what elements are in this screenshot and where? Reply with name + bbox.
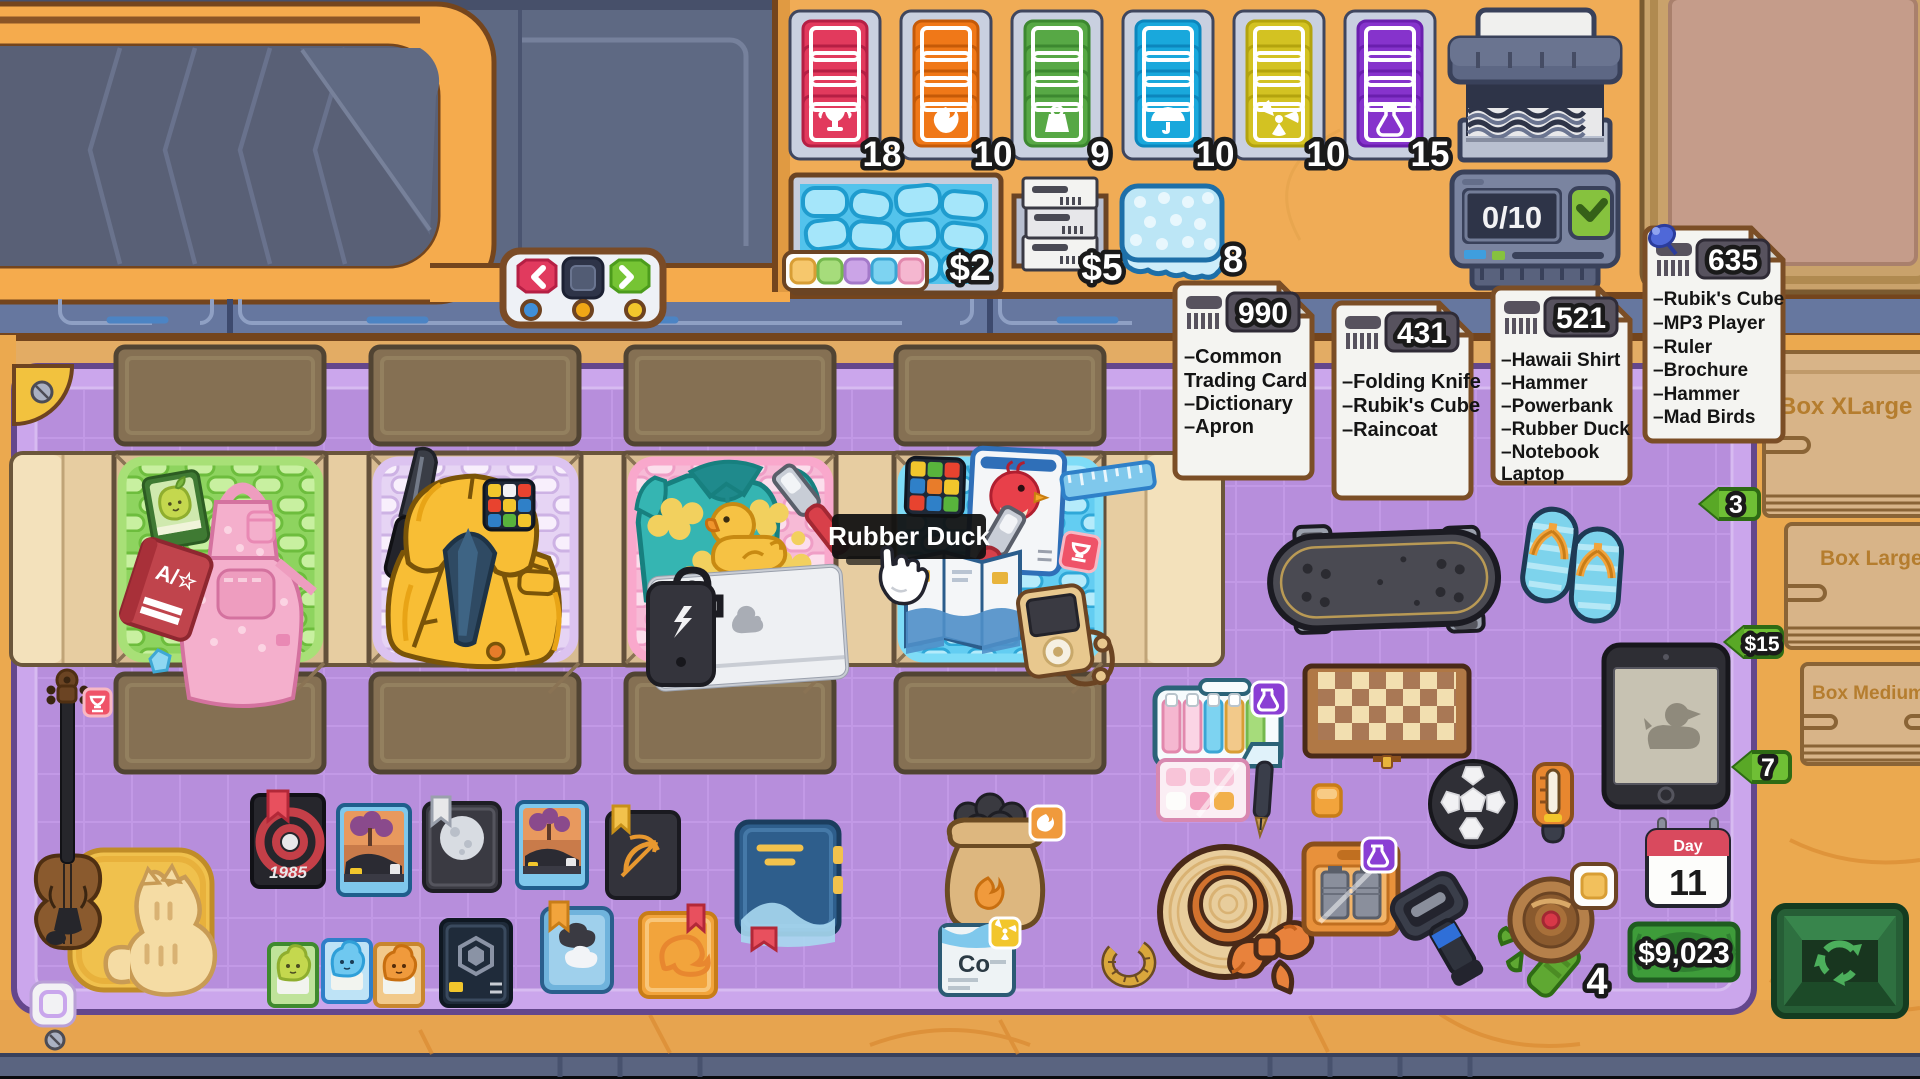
svg-text:$5: $5 bbox=[1081, 247, 1122, 288]
svg-text:–Hammer: –Hammer bbox=[1653, 384, 1740, 405]
svg-text:15: 15 bbox=[1411, 135, 1450, 174]
svg-text:Co: Co bbox=[958, 951, 990, 978]
svg-text:Box XLarge: Box XLarge bbox=[1779, 393, 1912, 420]
svg-text:10: 10 bbox=[1307, 135, 1346, 174]
svg-text:3: 3 bbox=[1729, 491, 1743, 519]
svg-text:9: 9 bbox=[1090, 135, 1109, 174]
svg-text:Laptop: Laptop bbox=[1501, 464, 1564, 485]
svg-text:–Ruler: –Ruler bbox=[1653, 337, 1713, 358]
svg-text:Box Large: Box Large bbox=[1820, 547, 1920, 570]
svg-text:–Apron: –Apron bbox=[1184, 416, 1254, 438]
svg-text:–Hammer: –Hammer bbox=[1501, 373, 1588, 394]
svg-text:$2: $2 bbox=[949, 247, 990, 288]
svg-text:–Raincoat: –Raincoat bbox=[1342, 419, 1438, 441]
svg-text:1985: 1985 bbox=[269, 863, 307, 882]
svg-text:4: 4 bbox=[1586, 961, 1607, 1003]
svg-text:18: 18 bbox=[863, 135, 902, 174]
svg-text:–Folding Knife: –Folding Knife bbox=[1342, 371, 1481, 393]
svg-text:–Mad Birds: –Mad Birds bbox=[1653, 407, 1755, 428]
svg-text:–Powerbank: –Powerbank bbox=[1501, 396, 1613, 417]
svg-text:521: 521 bbox=[1556, 302, 1606, 335]
svg-text:635: 635 bbox=[1708, 244, 1758, 277]
svg-text:–Hawaii Shirt: –Hawaii Shirt bbox=[1501, 350, 1621, 371]
svg-text:990: 990 bbox=[1238, 297, 1288, 330]
svg-text:–Dictionary: –Dictionary bbox=[1184, 393, 1294, 415]
svg-text:$9,023: $9,023 bbox=[1638, 937, 1730, 970]
svg-text:431: 431 bbox=[1397, 317, 1447, 350]
svg-text:10: 10 bbox=[974, 135, 1013, 174]
svg-text:–Brochure: –Brochure bbox=[1653, 360, 1748, 381]
svg-text:–Rubik's Cube: –Rubik's Cube bbox=[1342, 395, 1480, 417]
svg-text:–Notebook: –Notebook bbox=[1501, 442, 1600, 463]
svg-text:–Rubik's Cube: –Rubik's Cube bbox=[1653, 289, 1784, 310]
svg-text:11: 11 bbox=[1669, 862, 1707, 903]
svg-text:$15: $15 bbox=[1744, 633, 1779, 656]
svg-text:10: 10 bbox=[1196, 135, 1235, 174]
svg-text:Box Medium: Box Medium bbox=[1812, 683, 1920, 704]
svg-text:Day: Day bbox=[1673, 838, 1702, 855]
svg-text:–Rubber Duck: –Rubber Duck bbox=[1501, 419, 1630, 440]
svg-text:Rubber Duck: Rubber Duck bbox=[828, 521, 990, 551]
svg-text:Trading Card: Trading Card bbox=[1184, 370, 1307, 392]
svg-text:0/10: 0/10 bbox=[1482, 200, 1542, 235]
svg-text:–MP3 Player: –MP3 Player bbox=[1653, 313, 1766, 334]
svg-text:8: 8 bbox=[1223, 239, 1244, 280]
svg-text:–Common: –Common bbox=[1184, 346, 1282, 368]
svg-text:7: 7 bbox=[1761, 754, 1775, 782]
